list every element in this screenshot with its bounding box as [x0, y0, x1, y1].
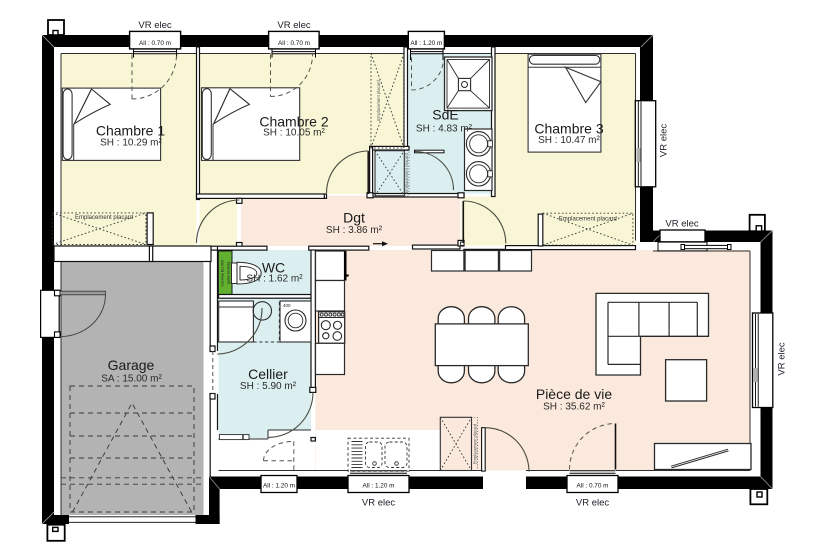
svg-text:VR elec: VR elec: [138, 20, 172, 31]
svg-text:SH : 4.83 m²: SH : 4.83 m²: [416, 124, 473, 135]
svg-text:VR elec: VR elec: [277, 20, 311, 31]
svg-text:VR elec: VR elec: [576, 498, 610, 509]
svg-text:VR elec: VR elec: [777, 342, 788, 376]
svg-text:SH : 35.62 m²: SH : 35.62 m²: [543, 402, 605, 413]
svg-text:SH : 5.90 m²: SH : 5.90 m²: [240, 381, 297, 392]
svg-text:Emplacement placard: Emplacement placard: [376, 80, 381, 121]
svg-text:All : 1.20 m: All : 1.20 m: [363, 483, 395, 490]
svg-text:Emplacement placard: Emplacement placard: [75, 215, 133, 221]
svg-text:VR elec: VR elec: [362, 498, 396, 509]
svg-text:Cellier: Cellier: [248, 366, 288, 382]
svg-text:SH : 10.47 m²: SH : 10.47 m²: [538, 135, 600, 146]
svg-text:SH : 10.29 m²: SH : 10.29 m²: [100, 138, 162, 149]
svg-text:Emplacement placard: Emplacement placard: [404, 152, 409, 193]
svg-text:Emplacement placard: Emplacement placard: [559, 217, 617, 223]
svg-text:Pièce de vie: Pièce de vie: [536, 386, 612, 402]
svg-text:All : 0.70 m: All : 0.70 m: [278, 40, 310, 47]
svg-text:400: 400: [283, 303, 291, 308]
svg-text:All : 0.70 m: All : 0.70 m: [577, 483, 609, 490]
svg-text:colonne EU WC: colonne EU WC: [221, 259, 225, 286]
svg-text:All : 1.20 m: All : 1.20 m: [410, 40, 442, 47]
svg-text:Emplacement placard: Emplacement placard: [473, 423, 478, 464]
svg-text:VR elec: VR elec: [659, 124, 670, 158]
svg-text:VR elec: VR elec: [665, 219, 699, 230]
svg-text:gaine techniq: gaine techniq: [227, 262, 231, 285]
svg-text:SH : 10.05 m²: SH : 10.05 m²: [263, 127, 325, 138]
svg-text:All : 1.20 m: All : 1.20 m: [263, 483, 295, 490]
svg-text:SA : 15.00 m²: SA : 15.00 m²: [101, 374, 162, 385]
svg-text:Dgt: Dgt: [343, 209, 365, 225]
svg-text:All : 0.70 m: All : 0.70 m: [139, 40, 171, 47]
svg-text:Chambre 3: Chambre 3: [534, 120, 603, 136]
svg-text:SH : 3.86 m²: SH : 3.86 m²: [326, 225, 383, 236]
svg-text:Garage: Garage: [108, 357, 155, 373]
svg-text:SH : 1.62 m²: SH : 1.62 m²: [246, 273, 303, 284]
svg-text:SdE: SdE: [432, 107, 458, 123]
svg-text:Chambre 1: Chambre 1: [96, 123, 165, 139]
